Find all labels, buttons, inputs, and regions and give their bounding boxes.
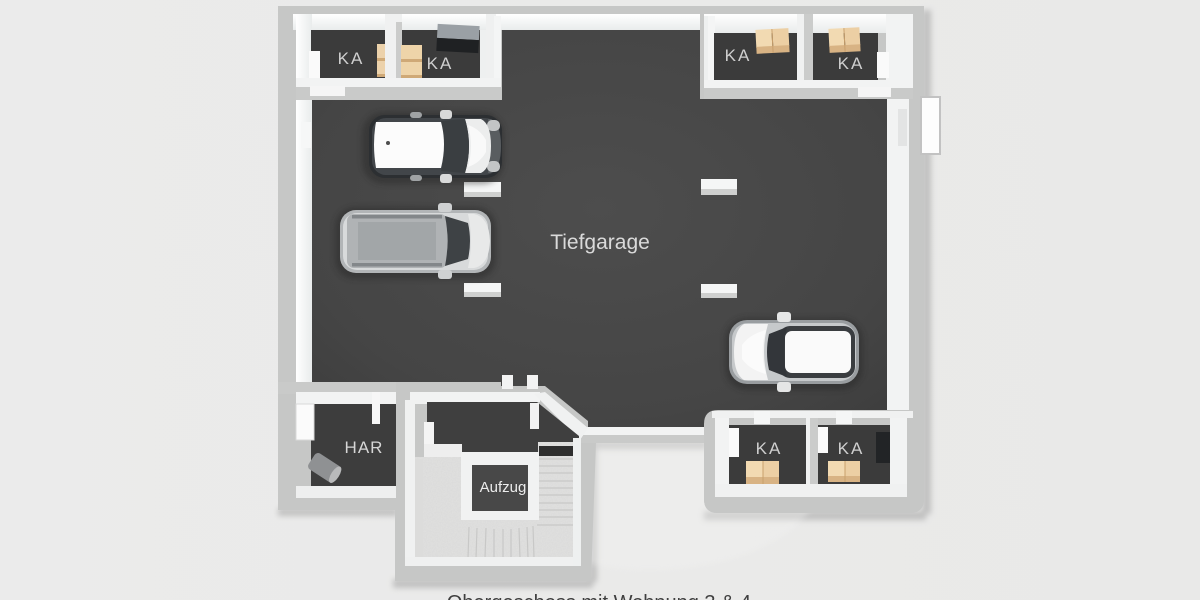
svg-text:Obergeschoss mit Wohnung 3 & 4: Obergeschoss mit Wohnung 3 & 4	[447, 592, 751, 600]
svg-text:Aufzug: Aufzug	[480, 479, 527, 496]
svg-text:KA: KA	[338, 49, 365, 68]
svg-text:KA: KA	[838, 54, 865, 73]
svg-text:HAR: HAR	[345, 438, 384, 457]
svg-text:KA: KA	[838, 439, 865, 458]
svg-text:Tiefgarage: Tiefgarage	[550, 231, 650, 254]
svg-text:KA: KA	[756, 439, 783, 458]
svg-text:KA: KA	[427, 54, 454, 73]
svg-text:KA: KA	[725, 46, 752, 65]
